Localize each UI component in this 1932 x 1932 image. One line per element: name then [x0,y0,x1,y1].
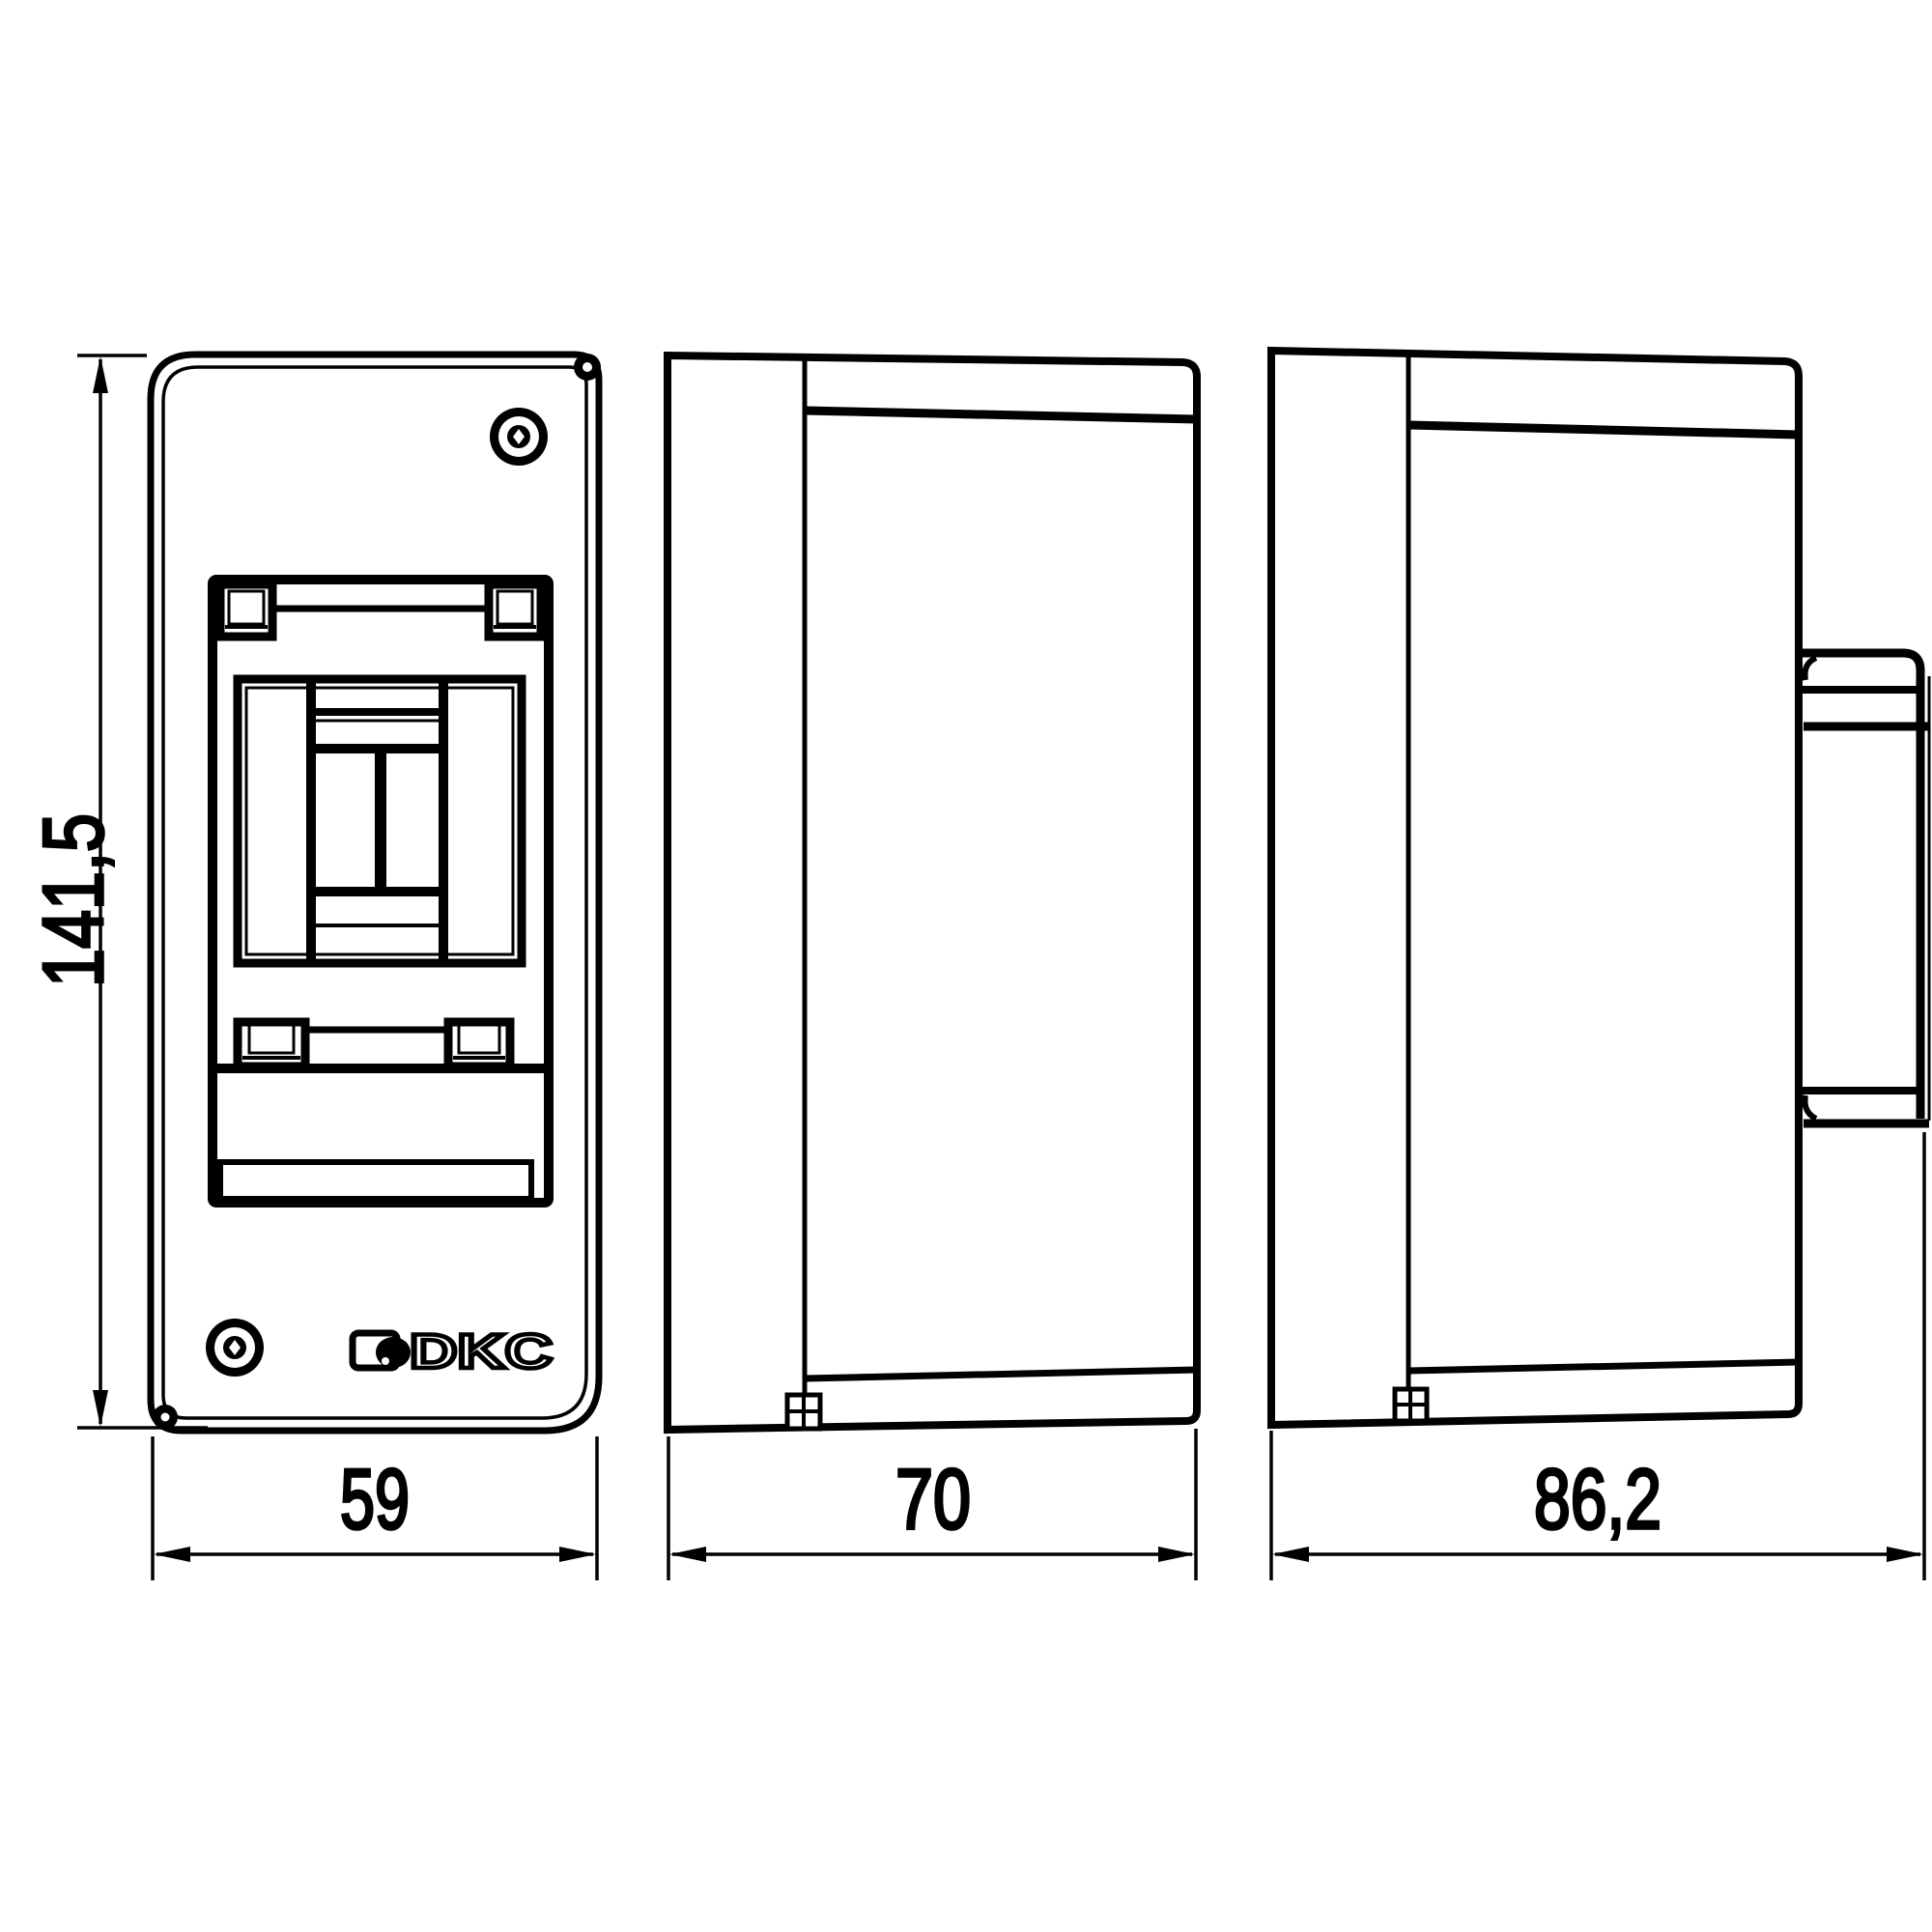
din-clip-top-right [489,584,541,637]
breaker-module [238,679,522,963]
dkc-logo: DKC [353,1324,553,1378]
ear-hole [161,1413,170,1422]
dimension-body-depth-label: 70 [895,1451,971,1547]
dimension-front-width-label: 59 [340,1451,410,1547]
logo-mark-dot [376,1337,411,1368]
logo-text: DKC [410,1324,553,1378]
enclosure-dimension-drawing: DKC [0,0,1932,1932]
dimension-overall-depth-label: 86,2 [1534,1451,1662,1547]
logo-mark-dot-hole [382,1357,389,1365]
din-clip-side-symbol [1395,1389,1427,1421]
din-clip-side-symbol [787,1395,820,1429]
din-clip-top-left [220,584,272,637]
screw-bottom-left [206,1319,264,1377]
technical-drawing-page: DKC [0,0,1932,1932]
din-clip-bottom-left [238,1022,305,1066]
screw-top-right [490,408,548,466]
dimension-height-label: 141,5 [25,813,121,987]
din-clip-bottom-right [448,1022,510,1066]
